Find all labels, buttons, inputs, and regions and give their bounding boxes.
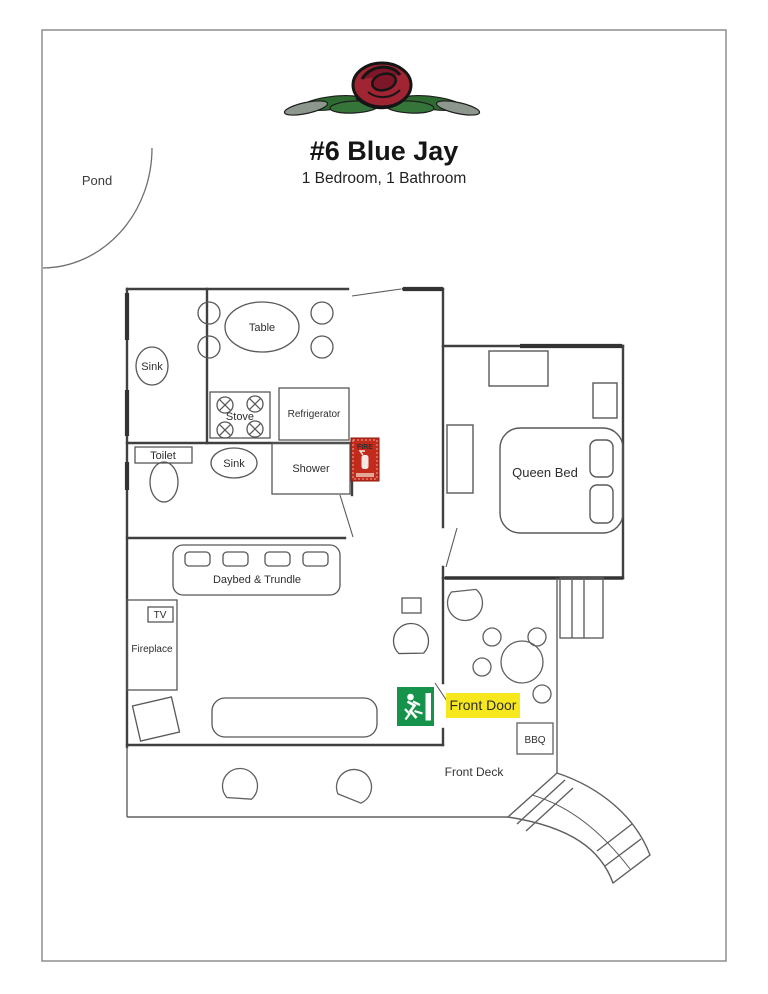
table-label: Table xyxy=(249,322,275,334)
daybed-label: Daybed & Trundle xyxy=(213,574,301,586)
tv-label: TV xyxy=(154,610,167,621)
toilet-bowl xyxy=(150,462,178,502)
bbq-label: BBQ xyxy=(524,735,545,746)
rose-logo xyxy=(283,63,480,118)
page-subtitle: 1 Bedroom, 1 Bathroom xyxy=(302,170,467,187)
chair xyxy=(198,302,220,324)
deck-table xyxy=(501,641,543,683)
queen-bed xyxy=(500,428,623,533)
front-door-label: Front Door xyxy=(450,697,517,713)
dresser xyxy=(489,351,548,386)
fire-sign-label: FIRE xyxy=(357,444,373,451)
chair xyxy=(198,336,220,358)
stove-label: Stove xyxy=(226,411,254,423)
deck-outline xyxy=(127,578,650,883)
pillow xyxy=(590,485,613,523)
floorplan-page: Pond #6 Blue Jay 1 Bedroom, 1 Bathroom xyxy=(0,0,768,994)
fireplace-label: Fireplace xyxy=(131,644,173,655)
front-deck-label: Front Deck xyxy=(445,765,505,779)
toilet-label: Toilet xyxy=(150,450,176,462)
queen-bed-label: Queen Bed xyxy=(512,465,578,480)
fan-chair xyxy=(335,767,374,804)
side-chair xyxy=(132,697,179,741)
fan-chair xyxy=(443,583,487,626)
wardrobe xyxy=(447,425,473,493)
side-table xyxy=(402,598,421,613)
shower-label: Shower xyxy=(292,463,330,475)
fan-chair xyxy=(220,766,260,804)
chair xyxy=(311,302,333,324)
closet-sink-label: Sink xyxy=(141,361,163,373)
page-title: #6 Blue Jay xyxy=(310,136,459,166)
pond-area: Pond xyxy=(43,148,152,268)
door-swings xyxy=(340,289,457,707)
exit-running-man-icon xyxy=(397,687,434,726)
front-door-callout: Front Door xyxy=(446,693,520,718)
fan-chair xyxy=(390,620,432,660)
nightstand xyxy=(593,383,617,418)
couch xyxy=(212,698,377,737)
side-steps xyxy=(560,578,603,638)
chair xyxy=(311,336,333,358)
bath-sink-label: Sink xyxy=(223,458,245,470)
floorplan-canvas: Pond #6 Blue Jay 1 Bedroom, 1 Bathroom xyxy=(0,0,768,994)
fire-extinguisher-icon: FIRE xyxy=(351,438,379,481)
pillow xyxy=(590,440,613,477)
refrigerator-label: Refrigerator xyxy=(288,409,341,420)
pond-label: Pond xyxy=(82,173,112,188)
window-marks xyxy=(127,289,623,578)
bedroom-furniture xyxy=(447,351,623,533)
